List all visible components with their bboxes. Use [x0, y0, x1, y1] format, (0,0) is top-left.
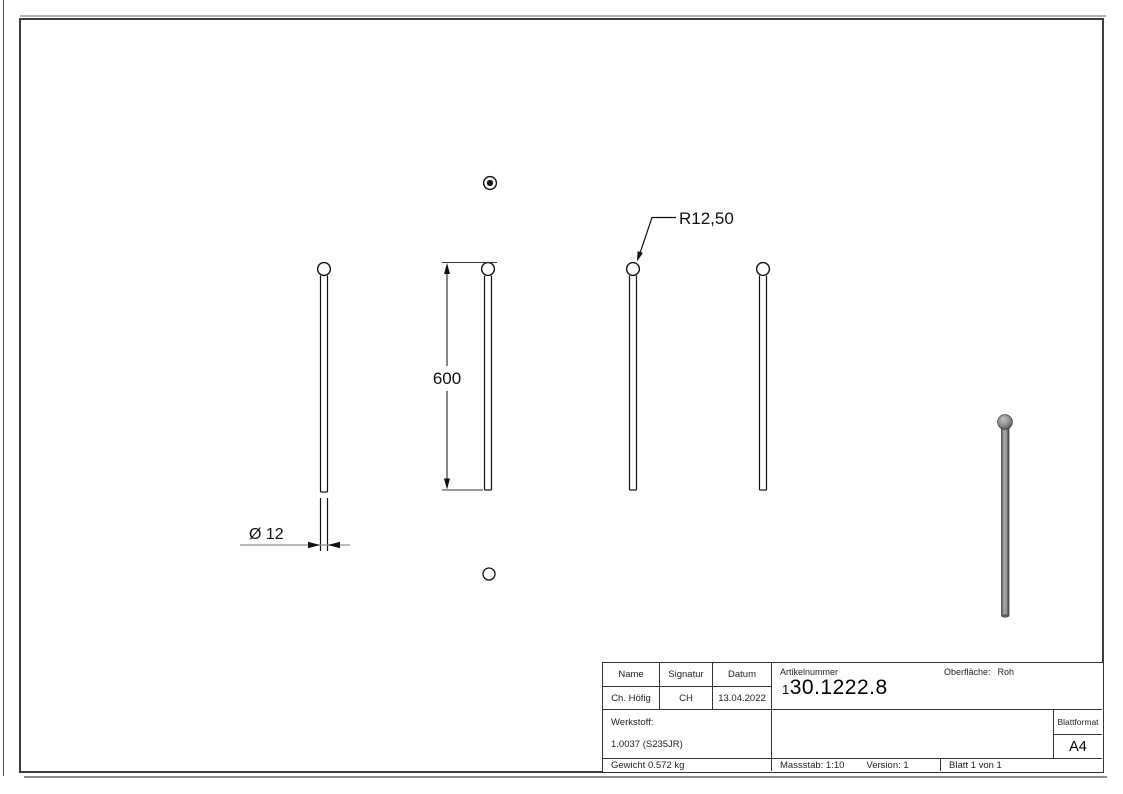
- bottom-view-circle: [483, 568, 495, 580]
- artikelnummer-prefix: 1: [782, 682, 790, 697]
- title-block-value-datum: 13.04.2022: [713, 687, 772, 710]
- title-block: Name Signatur Datum Ch. Höfig CH 13.04.2…: [602, 662, 1104, 773]
- dim-diameter-text: Ø 12: [249, 526, 284, 543]
- front-view-rod-2: [482, 263, 495, 490]
- artikelnummer-value: 130.1222.8: [782, 676, 888, 700]
- front-view-rod-3: [627, 263, 640, 490]
- dim-length-text: 600: [433, 369, 461, 388]
- title-block-value-signatur: CH: [660, 687, 713, 710]
- werkstoff-value: 1.0037 (S235JR): [611, 739, 683, 750]
- massstab-value: Massstab: 1:10: [780, 760, 844, 771]
- dimension-length-600: 600: [433, 263, 497, 491]
- title-block-value-name: Ch. Höfig: [603, 687, 660, 710]
- version-value: Version: 1: [866, 760, 908, 771]
- blattformat-label: Blattformat: [1054, 710, 1102, 735]
- title-block-header-datum: Datum: [713, 663, 772, 687]
- werkstoff-label: Werkstoff:: [611, 717, 653, 728]
- title-block-artikelnummer-cell: Artikelnummer 130.1222.8 Oberfläche:Roh: [772, 663, 1102, 710]
- massstab-field: Massstab: 1:10 Version: 1: [772, 759, 941, 771]
- iso-view-shaded-rod: [998, 415, 1013, 618]
- blattformat-value: A4: [1054, 735, 1102, 759]
- oberflaeche-value: Roh: [998, 667, 1015, 677]
- oberflaeche-label: Oberfläche:: [944, 667, 991, 677]
- oberflaeche-field: Oberfläche:Roh: [944, 667, 1014, 677]
- blatt-field: Blatt 1 von 1: [941, 759, 1102, 771]
- top-view-ball-circle: [484, 177, 497, 190]
- dim-radius-text: R12,50: [679, 209, 734, 228]
- gewicht-field: Gewicht 0.572 kg: [603, 759, 772, 771]
- dimension-diameter-12: Ø 12: [240, 526, 350, 548]
- front-view-rod-1: [318, 263, 331, 551]
- front-view-rod-4: [757, 263, 770, 490]
- title-block-empty-cell: [772, 710, 1054, 759]
- title-block-header-name: Name: [603, 663, 660, 687]
- dimension-radius-12-50: R12,50: [637, 209, 734, 262]
- title-block-werkstoff-cell: Werkstoff: 1.0037 (S235JR): [603, 710, 772, 759]
- title-block-header-signatur: Signatur: [660, 663, 713, 687]
- artikelnummer-main: 30.1222.8: [790, 676, 888, 699]
- drawing-sheet: 600 Ø 12 R12,50 Name Signatur Datum Ch. …: [0, 0, 1123, 794]
